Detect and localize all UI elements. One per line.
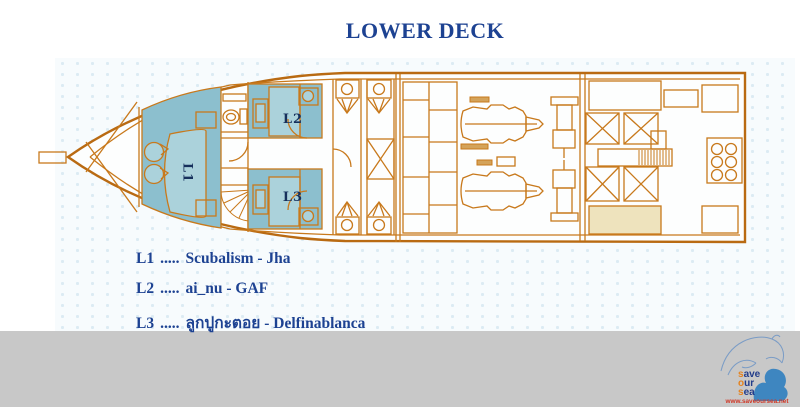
legend-item-l3: L3.....ลูกปูกะตอย - Delfinablanca	[136, 310, 371, 335]
save-our-sea-logo: save our sea www.saveoursea.net	[716, 331, 796, 405]
legend-name: Scubalism - Jha	[185, 250, 290, 267]
legend-code: L1	[136, 250, 154, 267]
legend-dots: .....	[160, 315, 179, 332]
boat-deck-plan: L1 L2 L3	[0, 0, 800, 331]
logo-url: www.saveoursea.net	[725, 398, 790, 405]
footer-bar	[0, 331, 800, 407]
cabin-l2-label: L2	[283, 112, 303, 127]
legend: L1.....Scubalism - Jha L2.....ai_nu - GA…	[136, 250, 371, 347]
cabin-l1-label: L1	[180, 163, 195, 183]
pillow	[145, 165, 164, 184]
legend-dots: .....	[160, 250, 179, 267]
legend-item-l1: L1.....Scubalism - Jha	[136, 250, 371, 268]
cabin-l2: L2	[248, 84, 322, 138]
pillow	[145, 143, 164, 162]
bowsprit	[39, 152, 66, 163]
legend-name: ai_nu - GAF	[185, 280, 268, 297]
logo-word: ea	[744, 387, 756, 398]
svg-text:sea: sea	[738, 387, 755, 398]
legend-item-l2: L2.....ai_nu - GAF	[136, 280, 371, 298]
legend-name: ลูกปูกะตอย - Delfinablanca	[185, 315, 365, 332]
legend-code: L2	[136, 280, 154, 297]
bench	[589, 206, 661, 234]
cabin-l3-label: L3	[283, 190, 303, 205]
legend-dots: .....	[160, 280, 179, 297]
cabin-l1: L1	[142, 87, 221, 228]
cabin-l3: L3	[248, 169, 322, 229]
legend-code: L3	[136, 315, 154, 332]
